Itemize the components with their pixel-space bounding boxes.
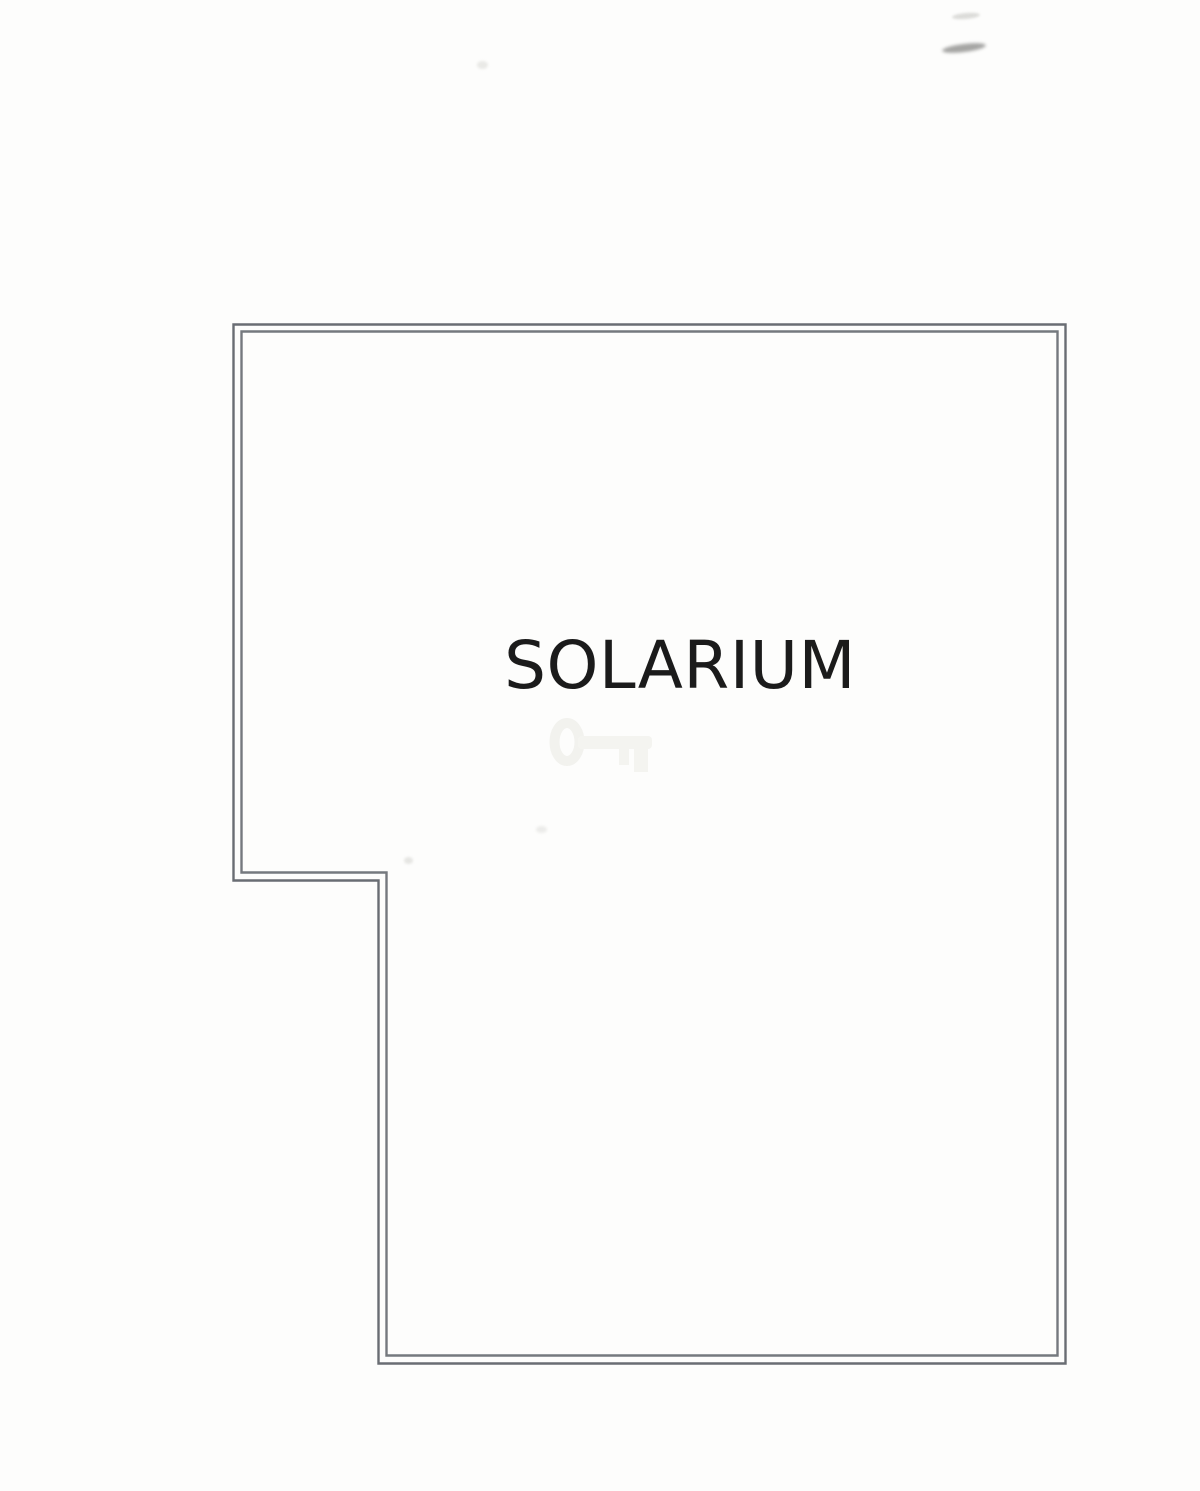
wall-outline-inner [242,332,1058,1356]
room-label: SOLARIUM [504,628,856,704]
key-icon [555,723,653,772]
key-tooth [619,746,629,765]
floor-plan-drawing [0,0,1200,1491]
key-bow [555,723,580,761]
scanned-floor-plan-page: SOLARIUM [0,0,1200,1491]
wall-outline-outer [234,325,1066,1364]
key-tooth [634,746,648,772]
